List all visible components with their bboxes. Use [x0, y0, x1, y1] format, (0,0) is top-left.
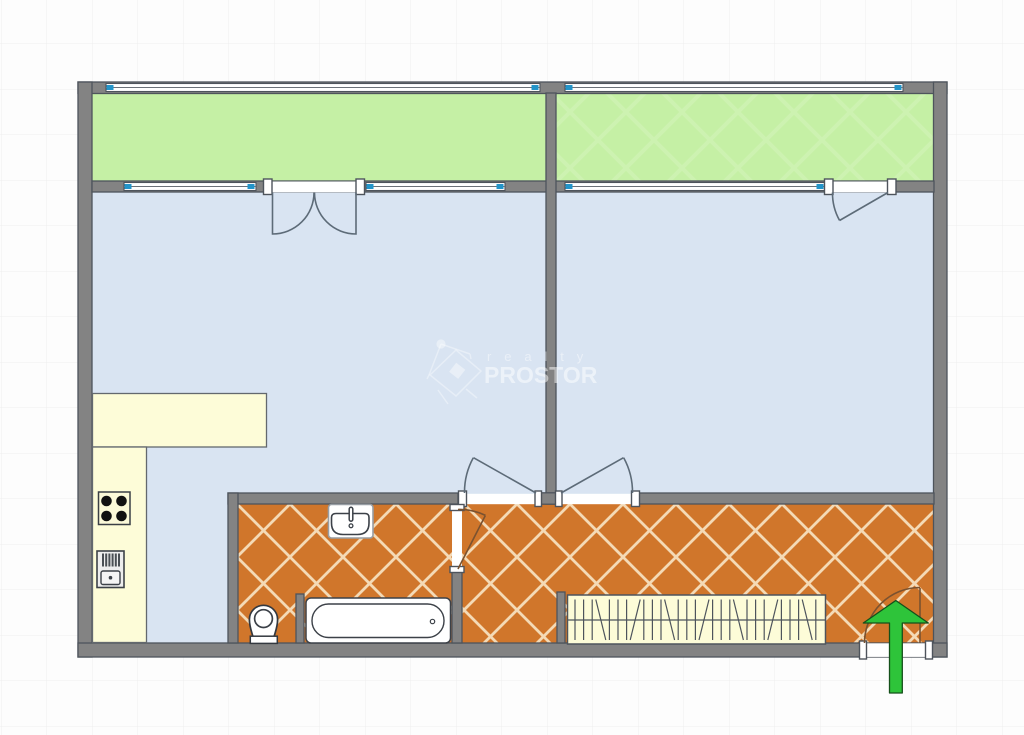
svg-text:PROSTOR: PROSTOR: [484, 362, 598, 388]
